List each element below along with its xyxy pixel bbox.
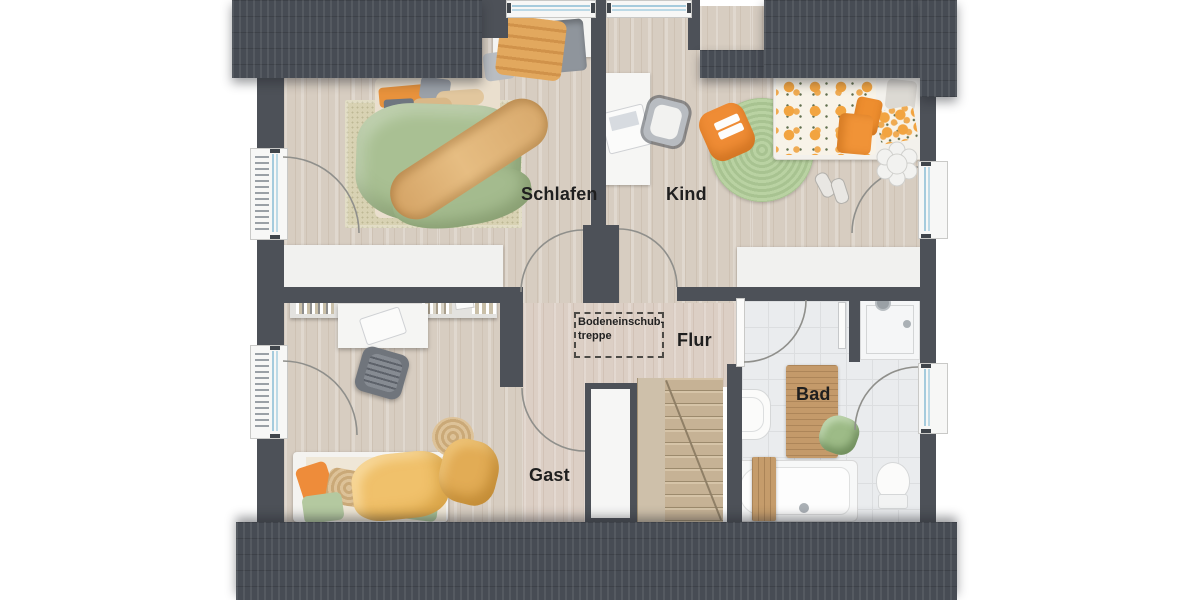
wall-left-3	[257, 436, 284, 522]
wall-divider-stub	[583, 225, 619, 303]
room-label-flur: Flur	[677, 330, 712, 351]
wall-hall-right	[677, 287, 925, 301]
kind-wardrobe	[737, 247, 920, 287]
kind-pillow-polka	[875, 105, 918, 145]
wall-hall-left	[284, 287, 523, 303]
window-kind	[918, 161, 948, 239]
window-glass-line	[924, 167, 926, 231]
wall-shower-partition	[849, 294, 860, 362]
window-glass-line	[924, 369, 926, 426]
window-glass-line-2	[512, 9, 590, 11]
window-glass-line	[272, 351, 274, 431]
wall-dormer-left	[482, 0, 508, 38]
window-bad	[918, 363, 948, 434]
bathtub-faucet-icon	[799, 503, 809, 513]
towel-rail	[838, 302, 846, 349]
window-dormer-kind	[606, 0, 692, 18]
window-cap	[270, 434, 280, 438]
shower-tray-line	[866, 305, 914, 354]
window-cap	[591, 3, 595, 13]
roof-top-right-notch	[700, 50, 764, 78]
roof-top-right	[764, 0, 920, 78]
window-glass-line-2	[612, 9, 686, 11]
window-cap	[687, 3, 691, 13]
roof-top-left	[232, 0, 482, 78]
window-gast	[250, 345, 288, 439]
room-label-bad: Bad	[796, 384, 831, 405]
flur-floor-lower	[523, 385, 585, 522]
window-cap	[270, 346, 280, 350]
window-glass-line	[512, 5, 590, 7]
loft-ladder-label-line2: treppe	[578, 329, 668, 343]
shower-knob-icon	[903, 320, 911, 328]
radiator-icon-schlafen	[255, 156, 269, 230]
window-glass-line-2	[276, 154, 278, 232]
window-cap	[507, 3, 511, 13]
window-cap	[921, 162, 931, 166]
loft-ladder-label: Bodeneinschub- treppe	[578, 315, 668, 344]
kind-blanket-orange-fold	[836, 113, 873, 156]
window-schlafen	[250, 148, 288, 240]
window-glass-line	[272, 154, 274, 232]
window-cap	[921, 429, 931, 433]
window-glass-line-2	[928, 167, 930, 231]
shower	[860, 299, 920, 360]
window-dormer-schlafen	[506, 0, 596, 18]
bad-door-leaf	[736, 298, 745, 367]
window-cap	[270, 149, 280, 153]
window-cap	[270, 235, 280, 239]
window-glass-line-2	[928, 369, 930, 426]
wall-right-3	[920, 432, 936, 522]
bathtub-caddy	[752, 457, 776, 521]
wall-right-1	[920, 88, 936, 162]
sink-basin-line	[740, 397, 764, 432]
wall-left-2	[257, 235, 284, 346]
roof-bottom	[236, 522, 957, 600]
window-cap	[921, 234, 931, 238]
window-cap	[921, 364, 931, 368]
wall-gast-flur	[500, 287, 523, 387]
hall-closet	[591, 389, 630, 518]
room-label-schlafen: Schlafen	[521, 184, 598, 205]
radiator-icon-gast	[255, 353, 269, 429]
room-label-gast: Gast	[529, 465, 570, 486]
wall-bad-left	[727, 364, 742, 522]
loft-ladder-label-line1: Bodeneinschub-	[578, 315, 668, 329]
toilet-tank	[878, 494, 908, 509]
wall-left-1	[257, 70, 284, 151]
window-glass-line-2	[276, 351, 278, 431]
stair-landing	[637, 378, 666, 522]
daybed-pillow-green	[301, 491, 345, 524]
window-cap	[607, 3, 611, 13]
roof-top-right-eave	[920, 0, 957, 97]
schlafen-wardrobe	[284, 245, 503, 287]
floor-plan: Bodeneinschub- treppe	[0, 0, 1200, 600]
window-glass-line	[612, 5, 686, 7]
bathtub	[732, 460, 858, 522]
room-label-kind: Kind	[666, 184, 707, 205]
